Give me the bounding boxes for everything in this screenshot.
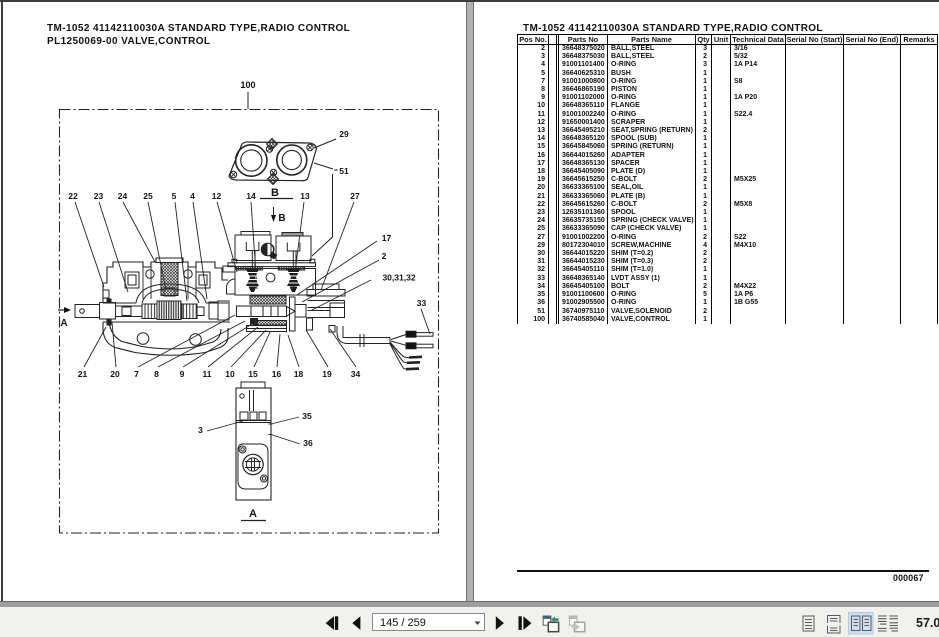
- svg-text:30,31,32: 30,31,32: [382, 273, 415, 283]
- svg-text:23: 23: [94, 191, 104, 201]
- svg-text:8: 8: [154, 369, 159, 379]
- svg-text:A: A: [249, 508, 257, 520]
- svg-text:14: 14: [246, 191, 256, 201]
- svg-text:11: 11: [203, 369, 212, 379]
- svg-text:36: 36: [303, 438, 313, 448]
- svg-text:9: 9: [180, 369, 185, 379]
- svg-text:12: 12: [212, 191, 222, 201]
- svg-text:13: 13: [300, 191, 310, 201]
- svg-text:35: 35: [302, 411, 312, 421]
- svg-text:5: 5: [172, 191, 177, 201]
- svg-text:29: 29: [339, 129, 349, 139]
- svg-text:21: 21: [78, 369, 88, 379]
- svg-text:20: 20: [110, 369, 120, 379]
- svg-text:33: 33: [417, 298, 427, 308]
- svg-text:22: 22: [68, 191, 78, 201]
- svg-text:3: 3: [198, 425, 203, 435]
- svg-text:17: 17: [382, 233, 392, 243]
- svg-text:10: 10: [225, 369, 235, 379]
- svg-text:15: 15: [248, 369, 258, 379]
- svg-text:51: 51: [339, 166, 349, 176]
- svg-text:27: 27: [350, 191, 360, 201]
- svg-text:18: 18: [294, 369, 304, 379]
- svg-text:4: 4: [190, 191, 195, 201]
- svg-text:A: A: [60, 318, 67, 329]
- svg-text:7: 7: [134, 369, 139, 379]
- svg-text:16: 16: [272, 369, 282, 379]
- svg-text:34: 34: [351, 369, 361, 379]
- svg-text:B: B: [278, 213, 285, 224]
- svg-text:2: 2: [382, 251, 387, 261]
- svg-text:19: 19: [322, 369, 332, 379]
- svg-text:24: 24: [118, 191, 128, 201]
- svg-text:B: B: [271, 187, 279, 199]
- svg-text:25: 25: [143, 191, 153, 201]
- svg-text:100: 100: [240, 80, 255, 90]
